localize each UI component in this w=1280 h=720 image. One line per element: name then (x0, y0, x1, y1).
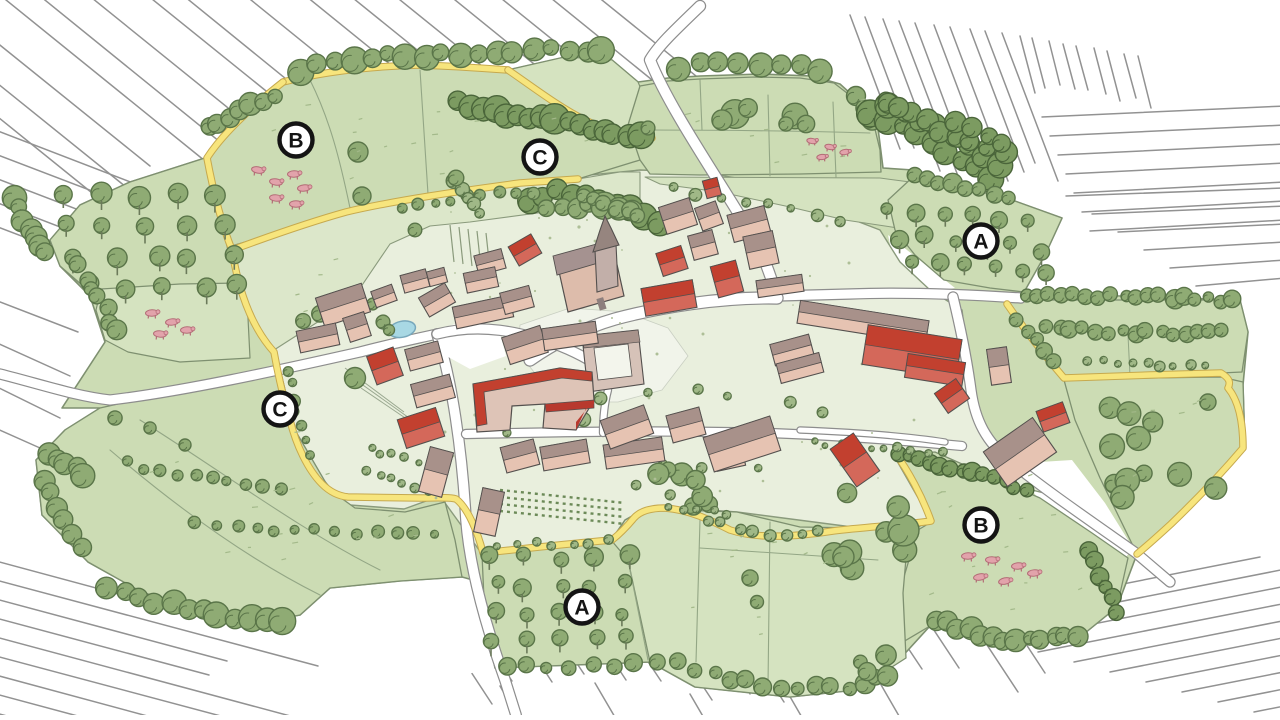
svg-text:A: A (973, 231, 988, 254)
svg-text:A: A (574, 597, 589, 620)
svg-text:C: C (272, 399, 287, 422)
svg-text:C: C (532, 147, 547, 170)
svg-text:B: B (973, 515, 988, 538)
svg-text:B: B (288, 130, 303, 153)
